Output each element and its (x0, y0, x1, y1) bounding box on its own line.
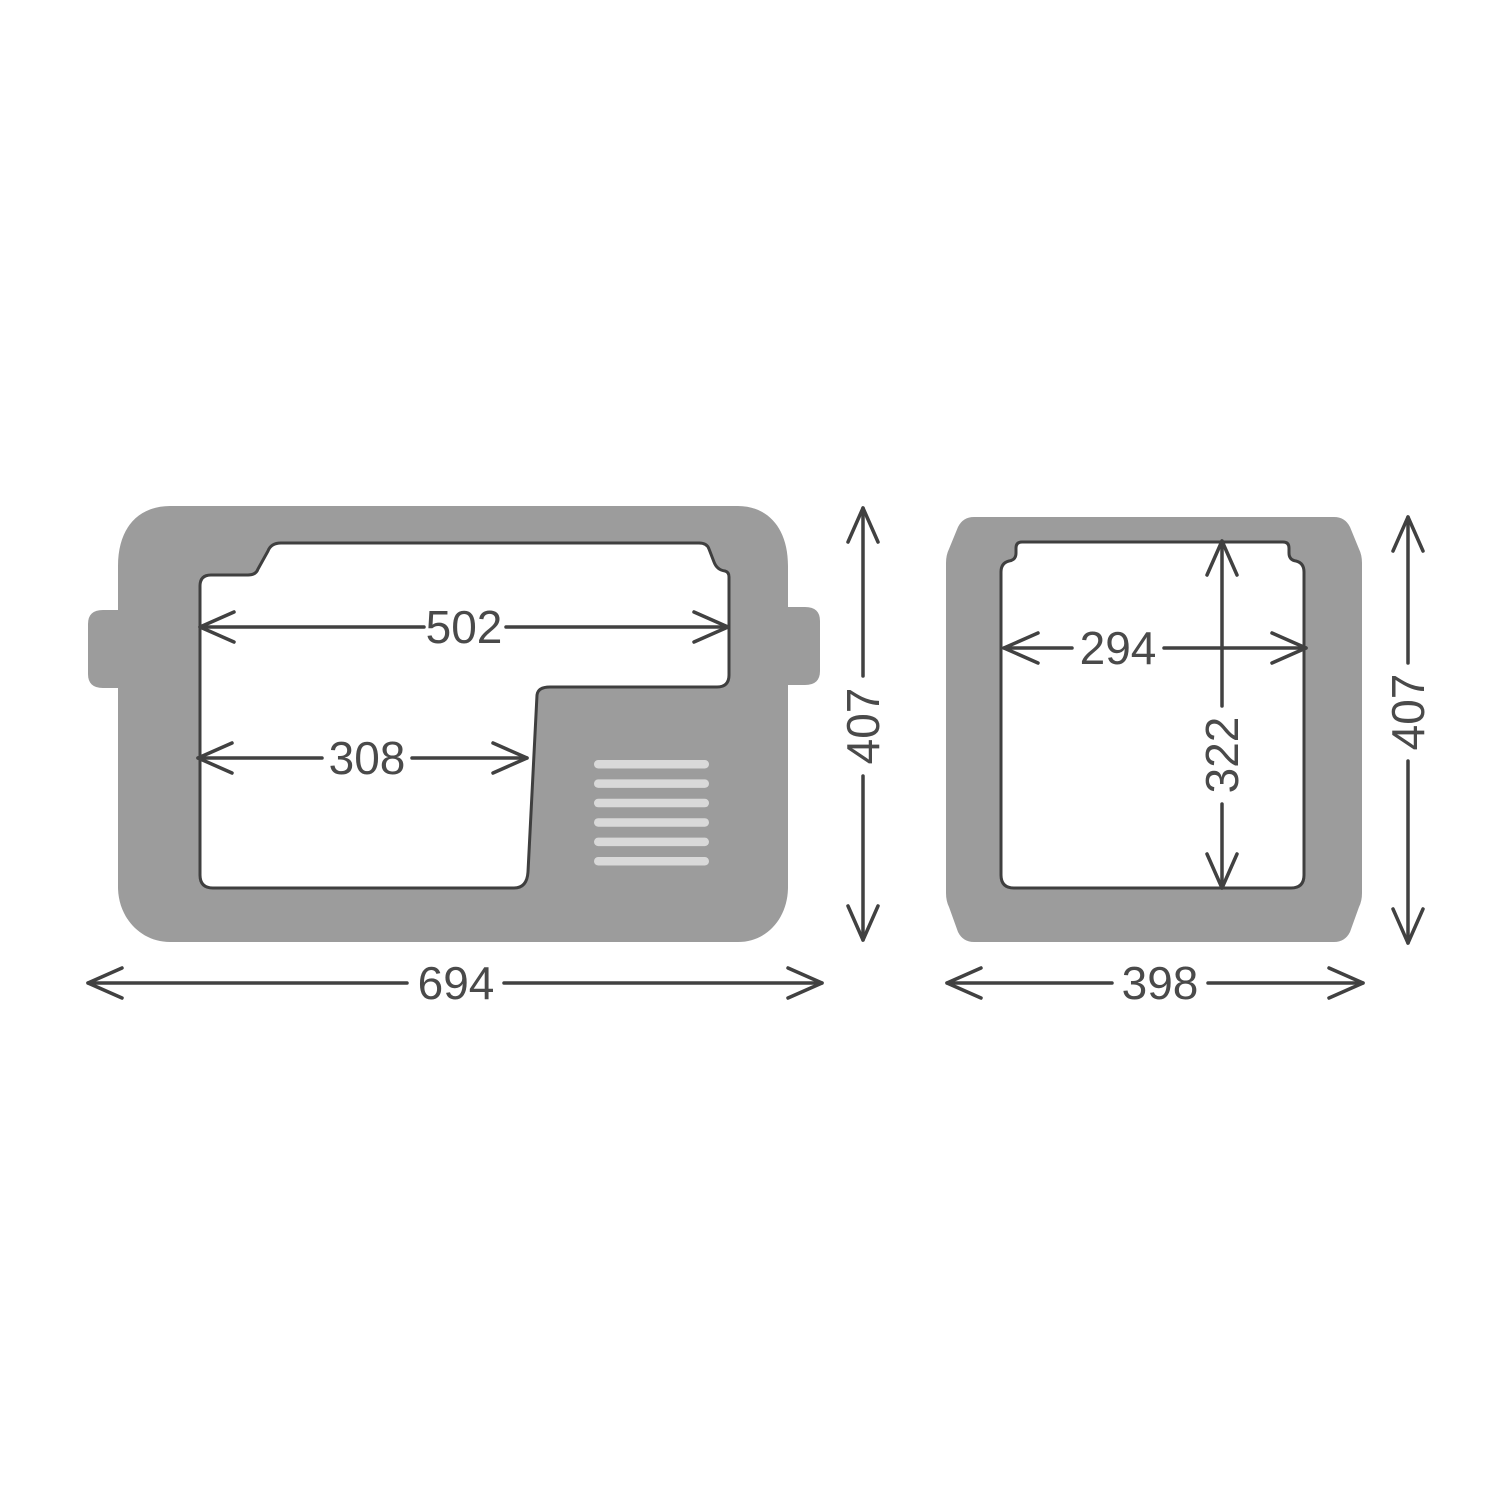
vent-slat (594, 857, 709, 866)
vent-slat (594, 760, 709, 769)
dim-label: 502 (426, 601, 503, 653)
vent-slat (594, 838, 709, 847)
vent-slat (594, 779, 709, 788)
dim-side-overall-width: 398 (947, 957, 1363, 1009)
dim-label: 294 (1080, 622, 1157, 674)
dim-front-overall-width: 694 (88, 957, 822, 1009)
dim-label: 694 (418, 957, 495, 1009)
vent-slat (594, 799, 709, 808)
vent-slat (594, 818, 709, 827)
diagram-canvas: 502 308 694 407 (0, 0, 1500, 1500)
dim-label: 398 (1122, 957, 1199, 1009)
side-view-cavity (1001, 542, 1304, 888)
front-view: 502 308 694 407 (88, 506, 889, 1009)
dim-label: 308 (329, 732, 406, 784)
dim-label: 322 (1196, 717, 1248, 794)
side-view: 294 322 398 407 (946, 517, 1434, 1009)
dim-front-overall-height: 407 (837, 508, 889, 940)
cooler-dimension-diagram: 502 308 694 407 (0, 0, 1500, 1500)
dim-label: 407 (1382, 674, 1434, 751)
dim-side-overall-height: 407 (1382, 517, 1434, 943)
dim-label: 407 (837, 688, 889, 765)
